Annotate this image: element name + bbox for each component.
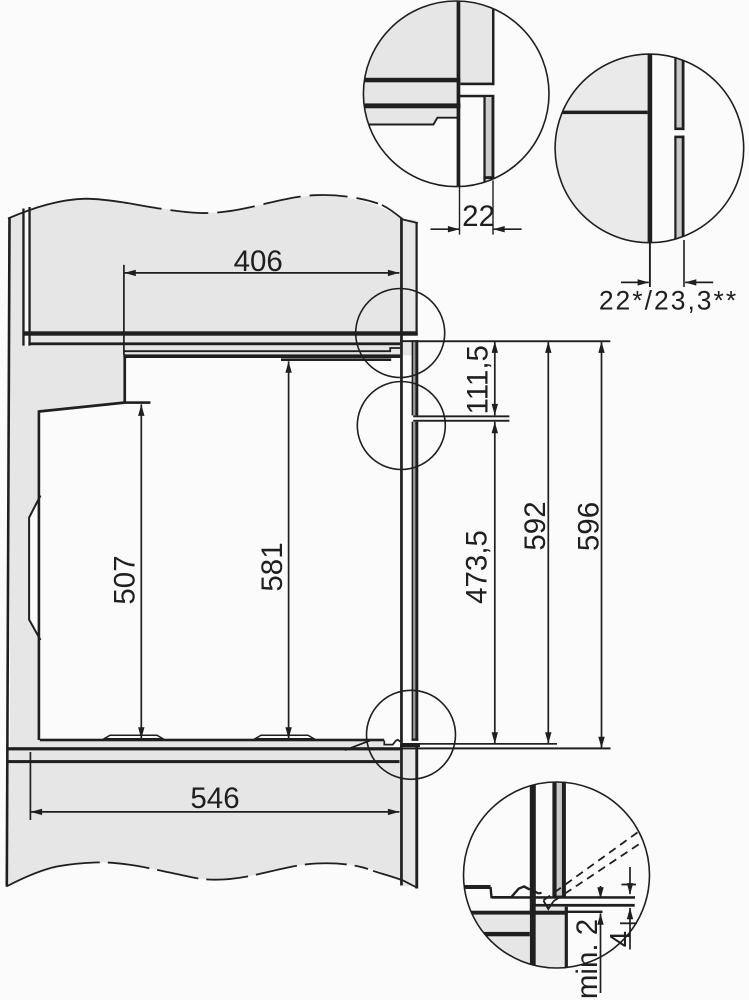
svg-text:596: 596 bbox=[573, 502, 606, 551]
svg-text:581: 581 bbox=[256, 542, 289, 591]
svg-text:473,5: 473,5 bbox=[461, 530, 494, 604]
svg-text:507: 507 bbox=[109, 555, 142, 604]
svg-text:406: 406 bbox=[234, 245, 283, 278]
svg-text:4: 4 bbox=[605, 931, 638, 947]
svg-text:22*/23,3**: 22*/23,3** bbox=[599, 286, 738, 316]
svg-text:111,5: 111,5 bbox=[461, 345, 494, 414]
svg-text:min. 2: min. 2 bbox=[571, 919, 604, 999]
svg-text:592: 592 bbox=[519, 501, 552, 550]
svg-text:546: 546 bbox=[190, 782, 239, 815]
svg-text:22: 22 bbox=[462, 200, 495, 233]
